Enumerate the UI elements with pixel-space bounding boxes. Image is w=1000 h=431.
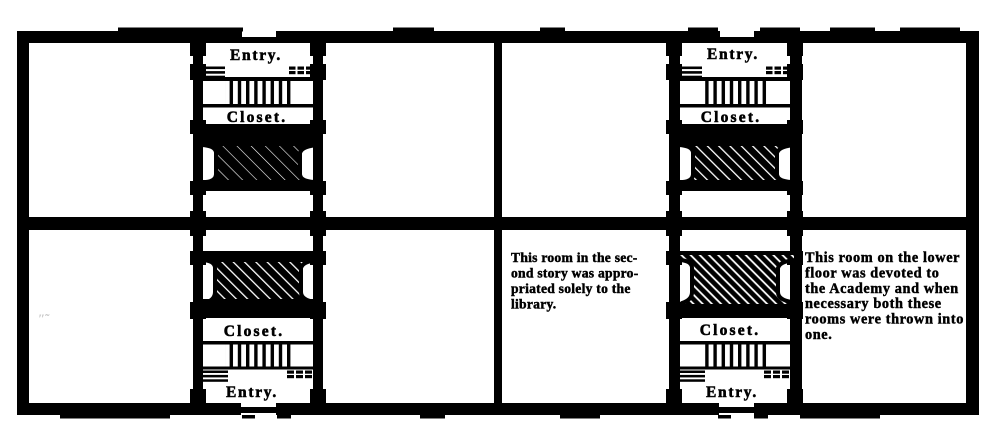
svg-text:Closet.: Closet. [700,322,761,339]
svg-text:one.: one. [805,327,832,343]
svg-text:Closet.: Closet. [224,323,285,340]
svg-text:floor was devoted to: floor was devoted to [805,265,939,281]
svg-text:Entry.: Entry. [706,384,758,401]
svg-text:Closet.: Closet. [701,109,762,126]
svg-text:Closet.: Closet. [227,109,288,126]
svg-text:Entry.: Entry. [230,47,282,64]
svg-text:rooms were thrown into: rooms were thrown into [805,312,964,328]
svg-text:priated solely to the: priated solely to the [511,281,631,296]
svg-text:the Academy and when: the Academy and when [805,281,959,297]
svg-text:Entry.: Entry. [226,384,278,401]
svg-text:ond story was appro-: ond story was appro- [511,266,639,281]
svg-text:This room on the lower: This room on the lower [805,250,960,266]
svg-text:This room in the sec-: This room in the sec- [511,250,638,265]
svg-text:Entry.: Entry. [707,46,759,63]
svg-text:necessary both these: necessary both these [805,296,942,312]
svg-text:library.: library. [511,297,556,312]
svg-text:″˜: ″˜ [38,311,50,326]
